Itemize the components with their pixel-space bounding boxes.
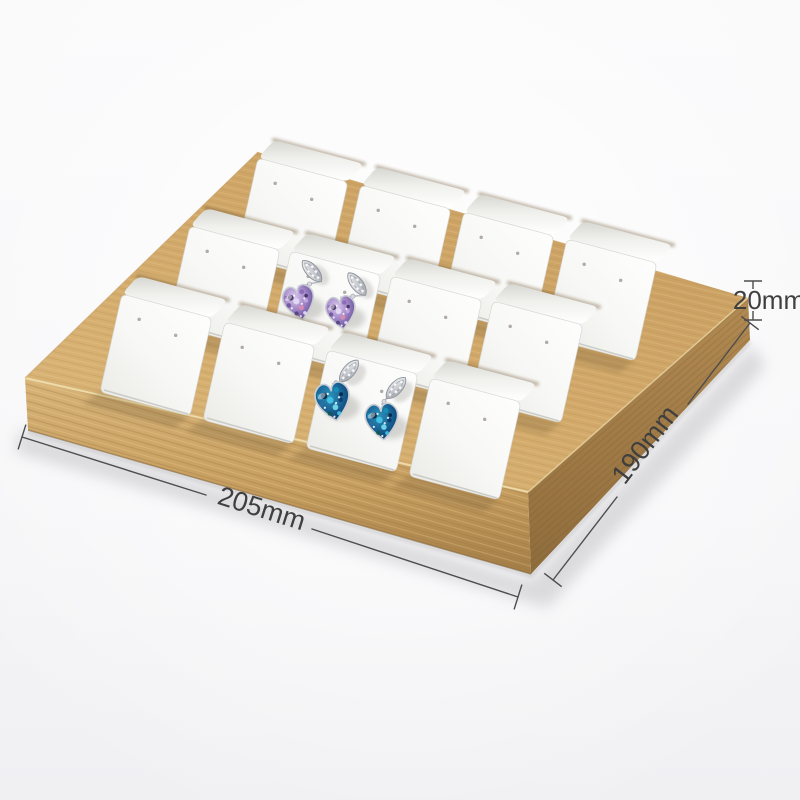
card-post-hole-1: [408, 300, 411, 303]
card-post-hole-2: [516, 252, 519, 255]
card-post-hole-1: [241, 346, 244, 349]
card-post-hole-2: [380, 390, 383, 393]
card-post-hole-2: [483, 418, 486, 421]
card-post-hole-2: [343, 291, 346, 294]
card-post-hole-1: [377, 209, 380, 212]
card-post-hole-2: [413, 225, 416, 228]
card-front-face: [410, 379, 520, 499]
card-post-hole-1: [447, 402, 450, 405]
card-post-hole-2: [174, 334, 177, 337]
card-post-hole-2: [545, 341, 548, 344]
product-photo: 205mm 190mm 20mm: [0, 0, 800, 800]
card-post-hole-1: [480, 236, 483, 239]
card-post-hole-2: [277, 362, 280, 365]
card-post-hole-1: [583, 263, 586, 266]
card-front-face: [101, 295, 211, 415]
product-photo-canvas: 205mm 190mm 20mm: [0, 0, 800, 800]
card-post-hole-2: [310, 198, 313, 201]
card-post-hole-2: [242, 266, 245, 269]
earring-bail: [307, 282, 311, 286]
height-dimension-label: 20mm: [733, 285, 800, 315]
card-front-face: [204, 323, 314, 443]
card-post-hole-1: [206, 250, 209, 253]
card-post-hole-2: [444, 316, 447, 319]
card-post-hole-1: [509, 325, 512, 328]
card-post-hole-1: [274, 182, 277, 185]
card-post-hole-1: [138, 318, 141, 321]
card-post-hole-2: [619, 279, 622, 282]
